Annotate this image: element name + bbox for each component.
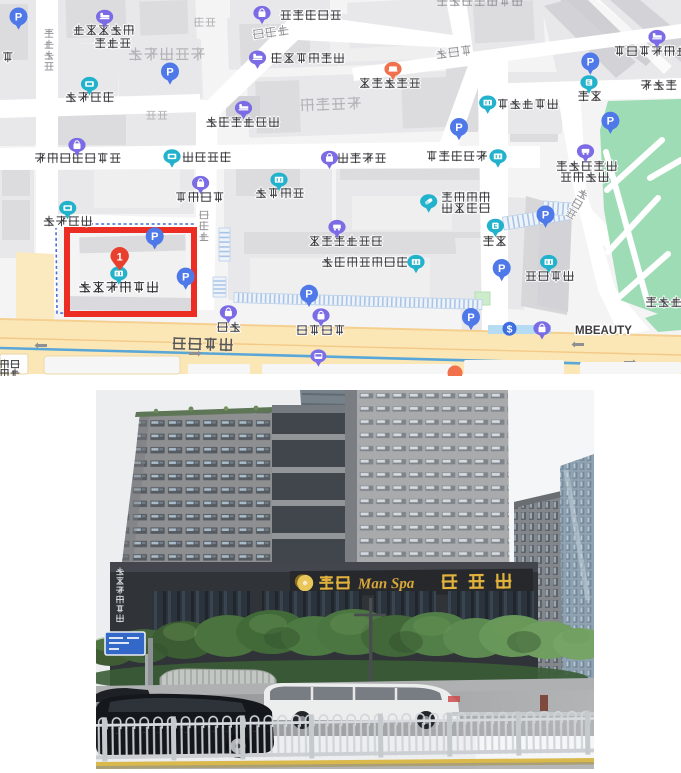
svg-text:P: P: [455, 122, 463, 134]
svg-text:P: P: [498, 263, 506, 275]
svg-text:MBEAUTY: MBEAUTY: [575, 325, 632, 337]
svg-text:P: P: [15, 11, 23, 23]
svg-text:E: E: [494, 224, 498, 230]
svg-text:E: E: [587, 80, 591, 86]
svg-text:P: P: [587, 56, 595, 68]
svg-text:P: P: [182, 271, 190, 283]
svg-text:P: P: [467, 312, 475, 324]
svg-text:P: P: [151, 231, 159, 243]
svg-text:1: 1: [117, 252, 123, 264]
svg-text:P: P: [542, 209, 550, 221]
svg-text:P: P: [607, 116, 615, 128]
svg-text:Man Spa: Man Spa: [357, 576, 415, 593]
svg-text:$: $: [507, 324, 513, 336]
svg-text:P: P: [166, 66, 174, 78]
svg-text:P: P: [305, 289, 313, 301]
